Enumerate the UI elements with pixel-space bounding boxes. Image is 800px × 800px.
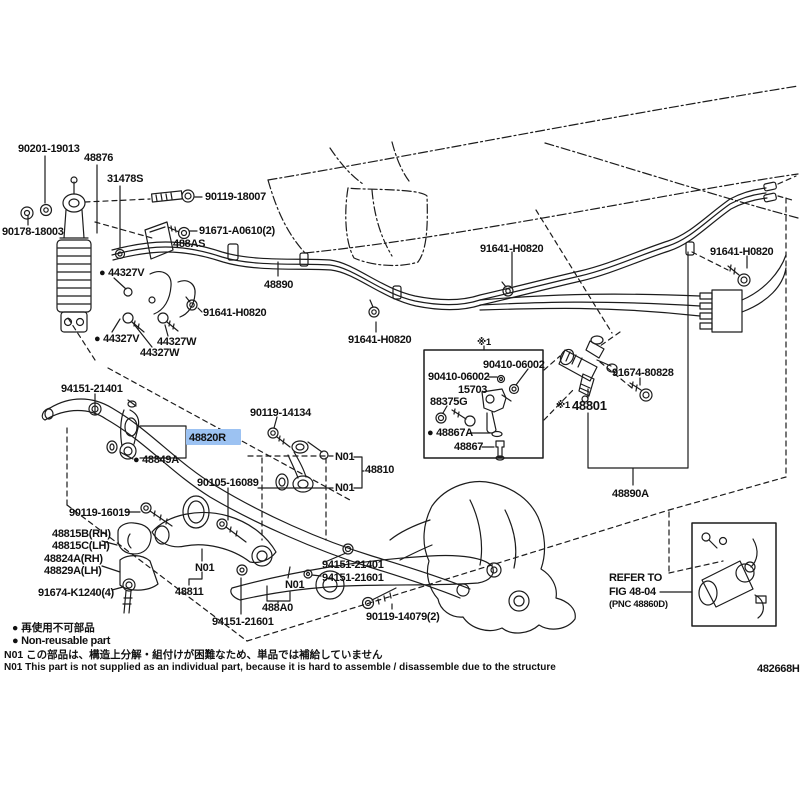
part-label-48867A[interactable]: ● 48867A: [427, 427, 473, 439]
part-label-48876[interactable]: 48876: [84, 152, 113, 164]
part-label-488A0[interactable]: 488A0: [262, 602, 293, 614]
part-label-488AS[interactable]: 488AS: [173, 238, 205, 250]
part-label-90201-19013[interactable]: 90201-19013: [18, 143, 80, 155]
bolt-44327W-2: [158, 313, 178, 331]
part-label-48890[interactable]: 48890: [264, 279, 293, 291]
part-label-90410-06002-2[interactable]: 90410-06002: [428, 371, 490, 383]
part-label-48829A[interactable]: 48829A(LH): [44, 565, 102, 577]
dashed-projection-lines: [67, 198, 786, 641]
bolt-90105-16089: [217, 519, 246, 542]
part-label-91641-H0820-1[interactable]: 91641-H0820: [203, 307, 267, 319]
parts-diagram-page: 90201-19013 48876 31478S 90119-18007 901…: [0, 0, 800, 800]
note-ref-N01-3: N01: [195, 562, 214, 574]
reference-mark-1: ※1: [477, 337, 492, 348]
refer-to-line1: REFER TO: [609, 572, 663, 584]
bolt-90119-18007: [152, 190, 194, 202]
refer-to-line2: FIG 48-04: [609, 586, 657, 598]
refer-to-line3: (PNC 48860D): [609, 599, 668, 610]
note-ref-N01-2: N01: [335, 482, 354, 494]
part-label-48824A[interactable]: 48824A(RH): [44, 553, 103, 565]
part-label-44327W-2[interactable]: 44327W: [140, 347, 180, 359]
note-ref-N01-4: N01: [285, 579, 304, 591]
part-label-48801[interactable]: 48801: [572, 398, 607, 413]
highlighted-part-label-48820R[interactable]: 48820R: [186, 429, 241, 445]
leader-lines: [28, 156, 747, 614]
note-ref-N01-1: N01: [335, 451, 354, 463]
part-label-90119-14079[interactable]: 90119-14079(2): [366, 611, 440, 623]
stabilizer-bar: [42, 399, 470, 598]
part-label-91674-K1240[interactable]: 91674-K1240(4): [38, 587, 115, 599]
part-label-90410-06002-1[interactable]: 90410-06002: [483, 359, 545, 371]
bolt-90119-14079: [363, 588, 397, 609]
part-label-48810[interactable]: 48810: [365, 464, 394, 476]
part-label-90178-18003[interactable]: 90178-18003: [2, 226, 64, 238]
washer-90201-19013: [41, 205, 52, 216]
part-label-88375G[interactable]: 88375G: [430, 396, 467, 408]
legend-non-reusable-jp: ● 再使用不可部品: [12, 621, 95, 634]
part-label-94151-21401-2[interactable]: 94151-21401: [322, 559, 384, 571]
part-label-31478S[interactable]: 31478S: [107, 173, 143, 185]
part-label-48811[interactable]: 48811: [175, 586, 204, 598]
bolt-90119-16019: [141, 503, 172, 526]
footer-notes: ● 再使用不可部品 ● Non-reusable part N01 この部品は、…: [4, 621, 800, 675]
part-label-90119-18007[interactable]: 90119-18007: [205, 191, 266, 203]
part-label-90105-16089[interactable]: 90105-16089: [197, 477, 259, 489]
stabilizer-bushing-bracket: [118, 523, 158, 613]
part-label-94151-21601-1[interactable]: 94151-21601: [322, 572, 384, 584]
part-label-91641-H0820-3[interactable]: 91641-H0820: [480, 243, 544, 255]
legend-non-reusable-en: ● Non-reusable part: [12, 635, 111, 647]
part-label-48890A[interactable]: 48890A: [612, 488, 649, 500]
part-label-48849A[interactable]: ● 48849A: [133, 454, 179, 466]
note-n01-jp: N01 この部品は、構造上分解・組付けが困難なため、単品では補給していません: [4, 648, 383, 661]
part-labels: 90201-19013 48876 31478S 90119-18007 901…: [2, 143, 774, 628]
car-underbody-outline: [268, 86, 798, 265]
washer-90178-18003: [21, 207, 33, 219]
part-label-91671-A0610[interactable]: 91671-A0610(2): [199, 225, 276, 237]
height-control-pump-box: [692, 523, 776, 626]
part-label-94151-21601-2[interactable]: 94151-21601: [212, 616, 274, 628]
part-label-48815B[interactable]: 48815B(RH): [52, 528, 111, 540]
part-label-91641-H0820-4[interactable]: 91641-H0820: [710, 246, 774, 258]
shock-absorber: [57, 177, 91, 332]
bolt-91674-80828: [630, 382, 652, 401]
part-label-90119-16019[interactable]: 90119-16019: [69, 507, 130, 519]
part-label-44327V-2[interactable]: ● 44327V: [94, 333, 140, 345]
bolt-91641-center: [369, 300, 379, 317]
part-label-94151-21401-1[interactable]: 94151-21401: [61, 383, 123, 395]
note-n01-en: N01 This part is not supplied as an indi…: [4, 662, 556, 673]
part-label-15703[interactable]: 15703: [458, 384, 487, 396]
part-label-91641-H0820-2[interactable]: 91641-H0820: [348, 334, 412, 346]
control-arm-48811: [152, 513, 276, 566]
parts-diagram-canvas: 90201-19013 48876 31478S 90119-18007 901…: [0, 0, 800, 800]
bolt-91671-A0610: [168, 226, 190, 239]
part-label-48867[interactable]: 48867: [454, 441, 483, 453]
part-label-90119-14134[interactable]: 90119-14134: [250, 407, 312, 419]
part-label-44327V-1[interactable]: ● 44327V: [99, 267, 145, 279]
part-label-48815C[interactable]: 48815C(LH): [52, 540, 110, 552]
figure-code: 482668H: [757, 663, 800, 675]
reference-mark-2: ※1: [556, 400, 571, 411]
bolt-44327W-1: [123, 313, 144, 332]
part-label-48820R[interactable]: 48820R: [189, 432, 226, 444]
part-label-91674-80828[interactable]: 91674-80828: [612, 367, 674, 379]
